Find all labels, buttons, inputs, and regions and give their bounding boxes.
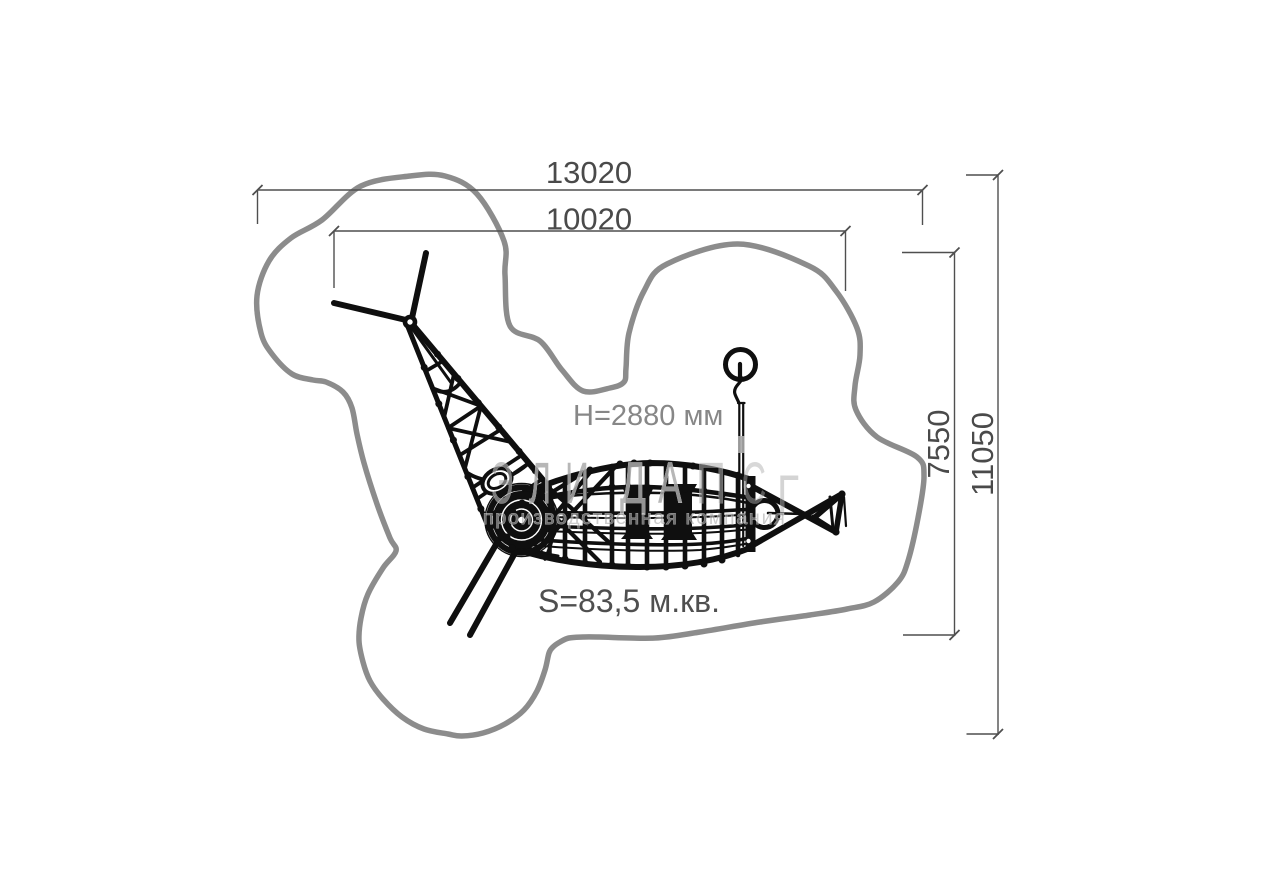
svg-text:H=2880 мм: H=2880 мм bbox=[573, 400, 723, 432]
svg-text:13020: 13020 bbox=[546, 155, 632, 190]
svg-text:7550: 7550 bbox=[921, 410, 956, 479]
svg-text:11050: 11050 bbox=[965, 412, 1000, 496]
svg-text:10020: 10020 bbox=[546, 202, 632, 237]
svg-text:производственная компания: производственная компания bbox=[483, 507, 787, 529]
svg-text:S=83,5 м.кв.: S=83,5 м.кв. bbox=[538, 583, 720, 619]
